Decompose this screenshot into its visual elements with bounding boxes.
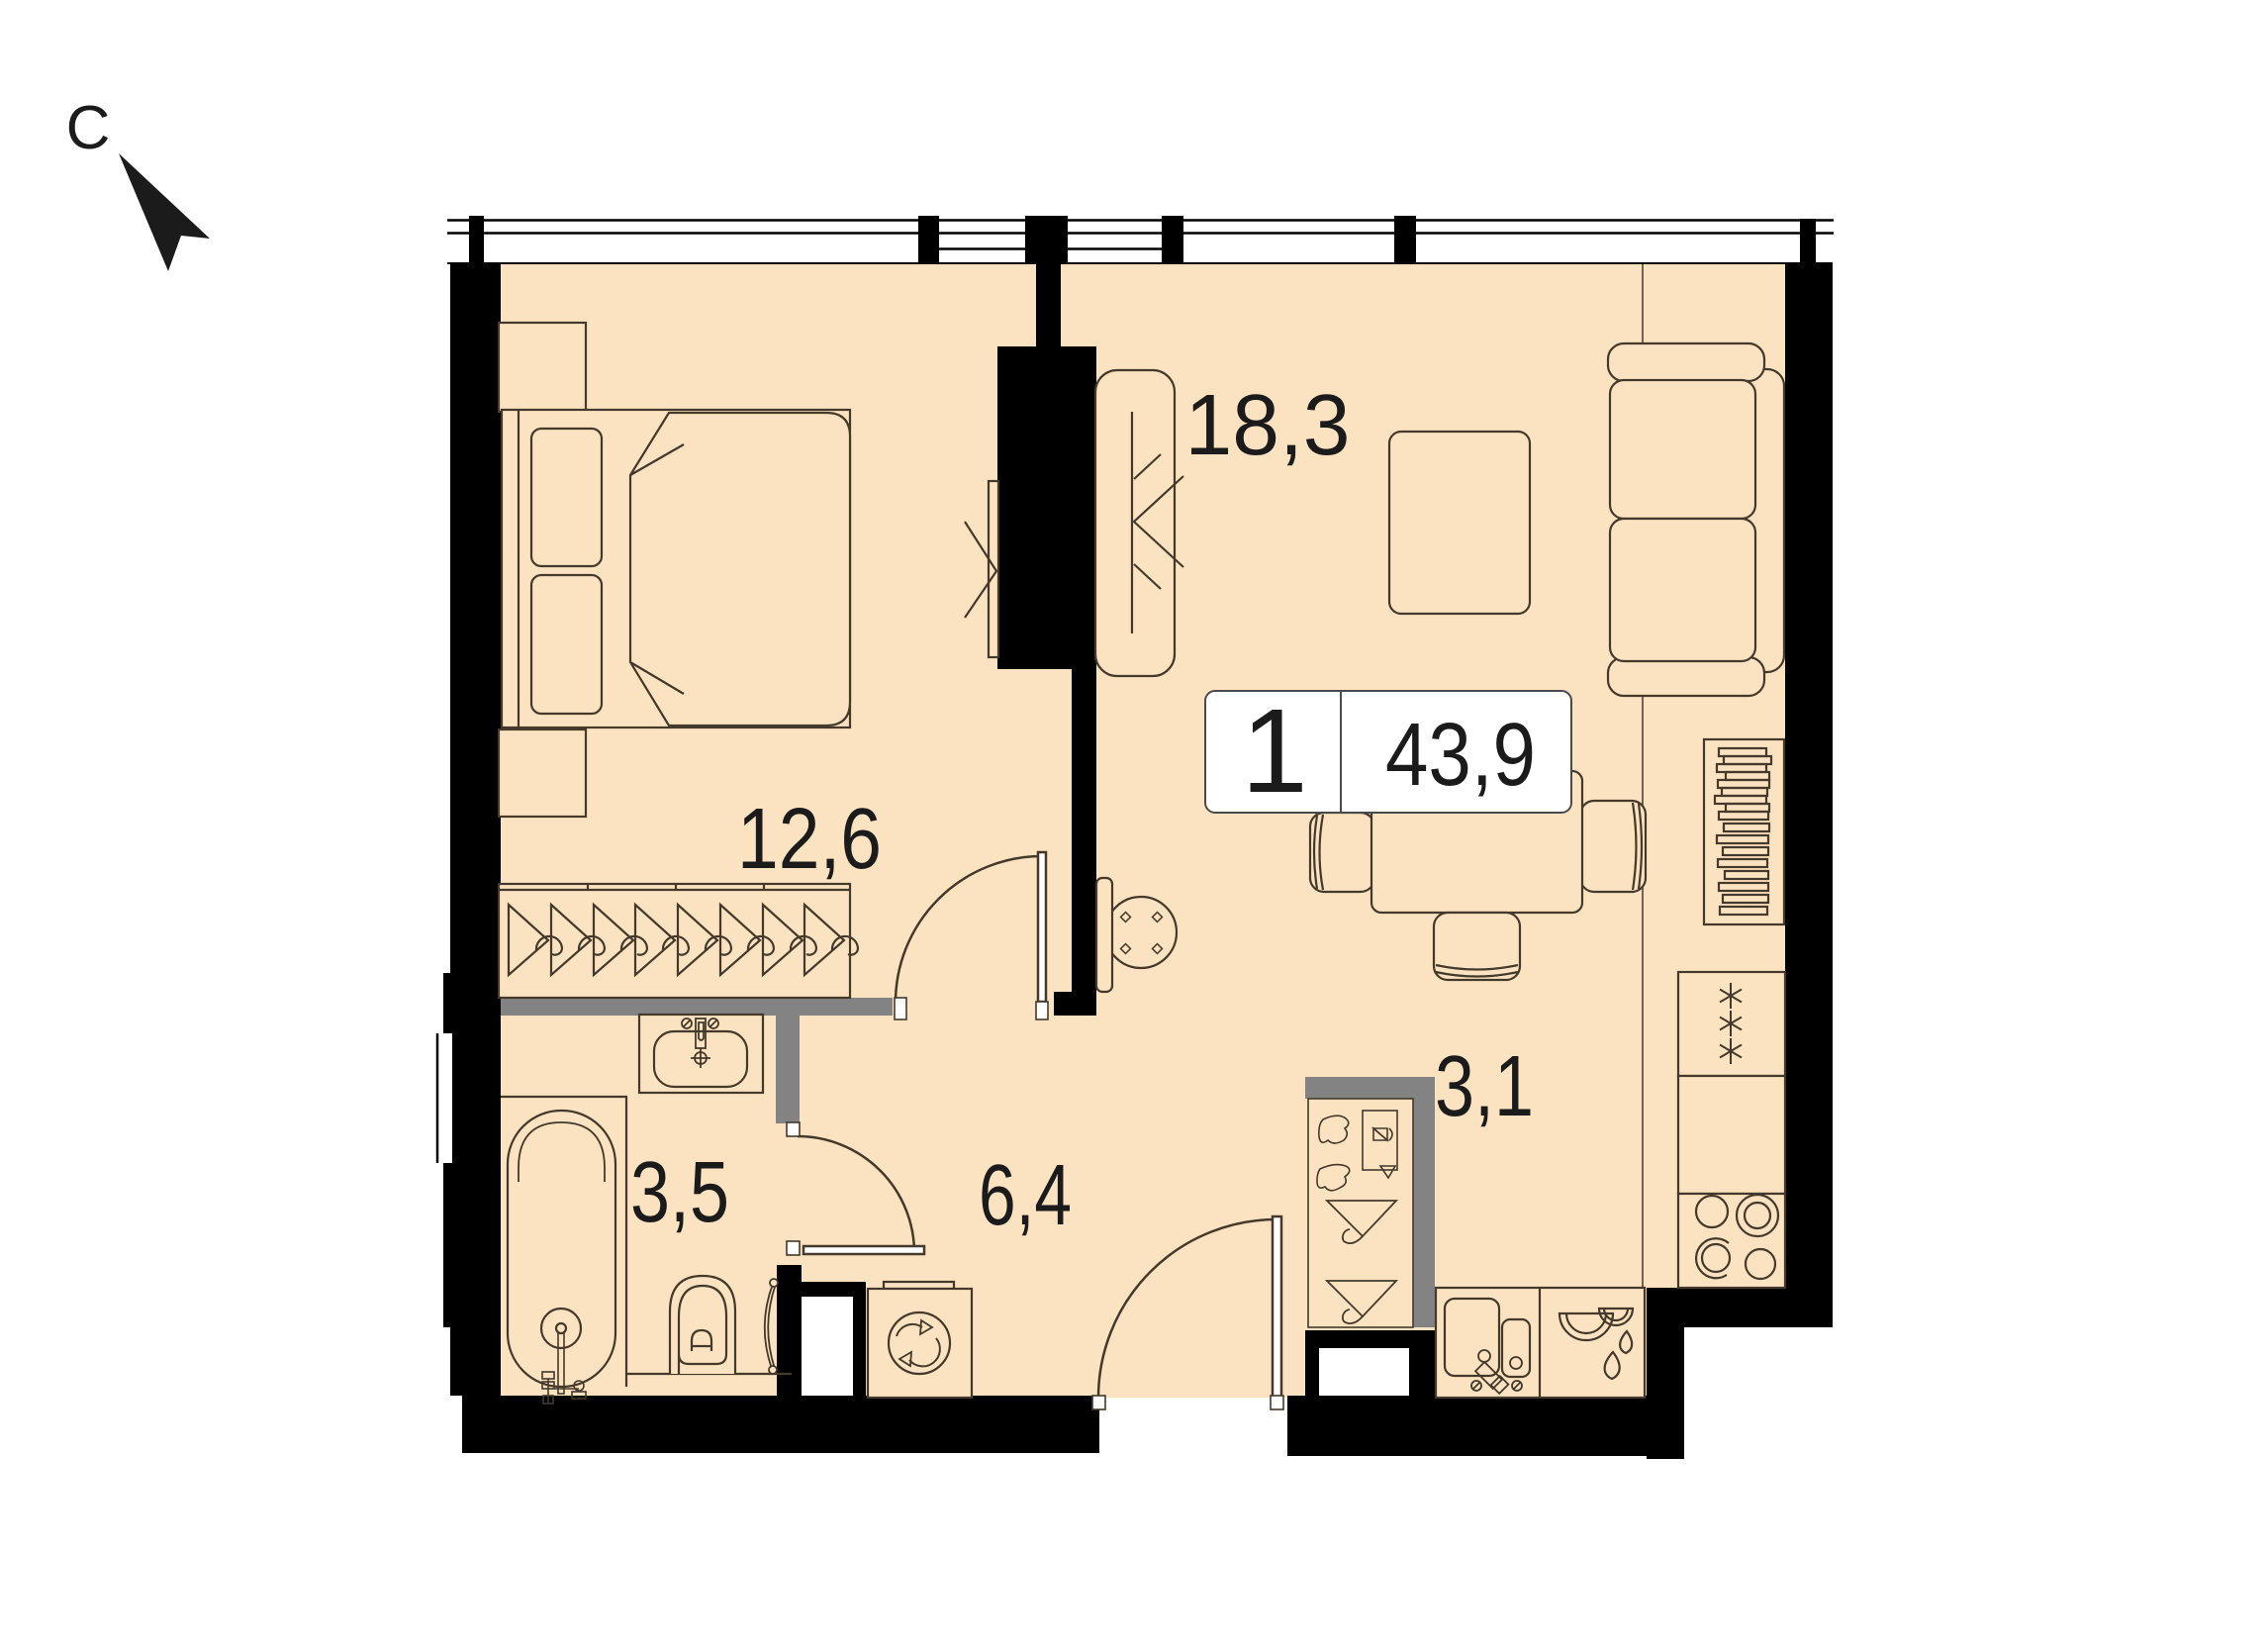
svg-text:12,6: 12,6 — [737, 791, 882, 887]
svg-text:43,9: 43,9 — [1385, 706, 1536, 805]
svg-text:3,1: 3,1 — [1435, 1038, 1534, 1134]
svg-text:1: 1 — [1241, 683, 1307, 818]
svg-text:C: C — [66, 94, 111, 162]
svg-text:18,3: 18,3 — [1185, 377, 1351, 473]
svg-text:6,4: 6,4 — [979, 1147, 1072, 1243]
svg-text:3,5: 3,5 — [630, 1144, 729, 1240]
